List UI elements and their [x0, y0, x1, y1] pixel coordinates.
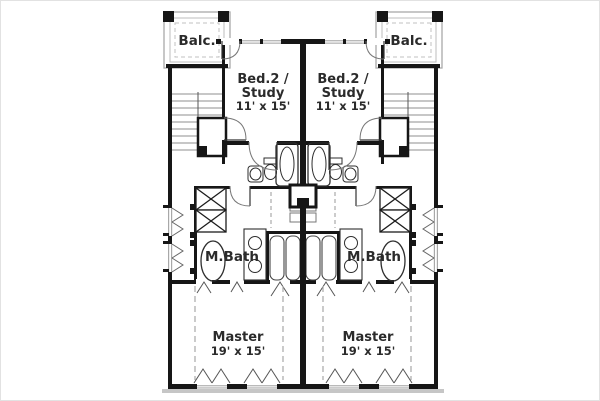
room-label-mbath-left: M.Bath — [205, 249, 259, 265]
room-label-bed2-right: Bed.2 / Study 11' x 15' — [316, 73, 370, 113]
floor-plan-image: Balc. Balc. Bed.2 / Study 11' x 15' Bed.… — [0, 0, 600, 401]
mbath-left-text: M.Bath — [205, 249, 259, 265]
bed2-left-name1: Bed.2 / — [236, 73, 290, 87]
room-label-master-right: Master 19' x 15' — [341, 331, 395, 358]
mbath-right-text: M.Bath — [347, 249, 401, 265]
master-right-dims: 19' x 15' — [341, 344, 395, 357]
master-right-name: Master — [341, 331, 395, 345]
foundation-sill-band — [162, 389, 444, 393]
master-left-name: Master — [211, 331, 265, 345]
balcony-left-text: Balc. — [178, 33, 215, 49]
room-label-master-left: Master 19' x 15' — [211, 331, 265, 358]
room-label-balcony-right: Balc. — [390, 33, 427, 49]
bed2-left-name2: Study — [236, 87, 290, 101]
party-wall — [290, 39, 316, 389]
bed2-left-dims: 11' x 15' — [236, 100, 290, 113]
bed2-right-name1: Bed.2 / — [316, 73, 370, 87]
room-label-mbath-right: M.Bath — [347, 249, 401, 265]
floor-plan-drawing — [0, 0, 600, 401]
room-label-balcony-left: Balc. — [178, 33, 215, 49]
master-left-dims: 19' x 15' — [211, 344, 265, 357]
room-label-bed2-left: Bed.2 / Study 11' x 15' — [236, 73, 290, 113]
bed2-right-name2: Study — [316, 87, 370, 101]
balcony-right-text: Balc. — [390, 33, 427, 49]
bed2-right-dims: 11' x 15' — [316, 100, 370, 113]
